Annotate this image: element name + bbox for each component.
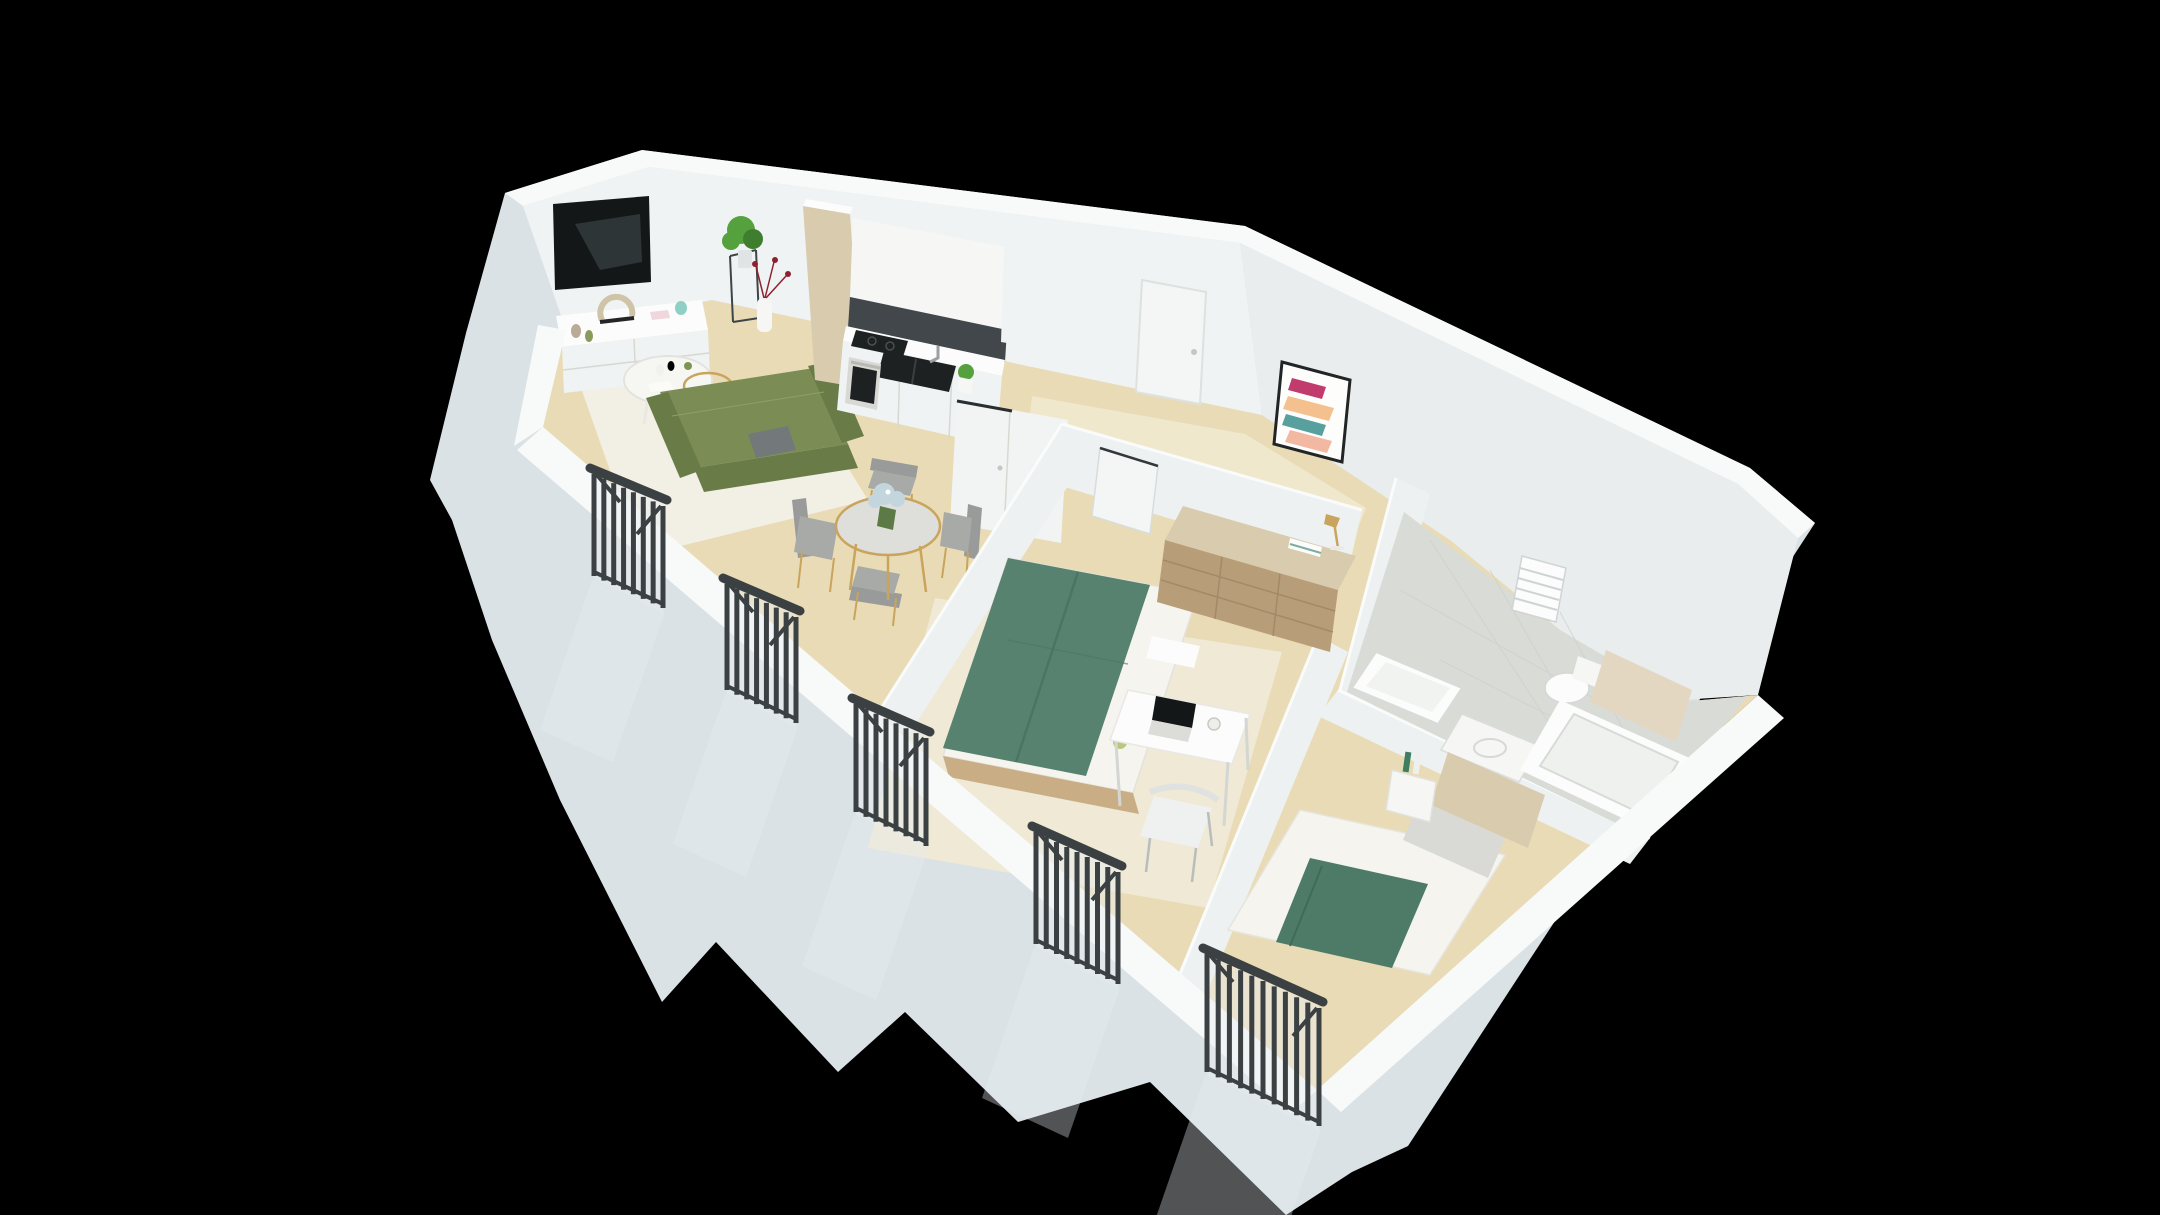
door-handle <box>1191 349 1197 355</box>
dining-chair-right-seat <box>940 512 972 552</box>
hydrangea-3 <box>868 494 882 508</box>
floorplan-canvas: 3D cutaway dollhouse render of an apartm… <box>0 0 2160 1215</box>
berry-2 <box>772 257 778 263</box>
floorplan-render: 3D cutaway dollhouse render of an apartm… <box>0 0 2160 1215</box>
lamp-base <box>1330 546 1344 550</box>
desk-leg <box>1246 718 1248 770</box>
table-green-cup <box>684 362 692 370</box>
desk-cup <box>1208 718 1220 730</box>
hydrangea-highlight <box>886 490 891 495</box>
berry-1 <box>752 261 758 267</box>
hydrangea-2 <box>889 491 905 507</box>
teal-vase <box>675 301 687 315</box>
flower-vase <box>877 506 896 530</box>
tall-plant-foliage-3 <box>722 232 740 250</box>
decor-vase-1 <box>571 324 581 338</box>
white-floor-vase <box>757 298 772 332</box>
wardrobe-handle <box>998 466 1003 471</box>
berry-3 <box>785 271 791 277</box>
front-door <box>1136 280 1206 404</box>
table-vase-1 <box>656 364 664 376</box>
tall-plant-foliage-2 <box>743 229 763 249</box>
kitchen-corner-column <box>1001 246 1112 360</box>
table-vase-2 <box>668 361 675 371</box>
oven-glass <box>850 366 877 404</box>
kitchen-plant-pot <box>957 377 973 394</box>
decor-vase-2 <box>585 330 593 342</box>
plant-pot <box>738 250 752 268</box>
